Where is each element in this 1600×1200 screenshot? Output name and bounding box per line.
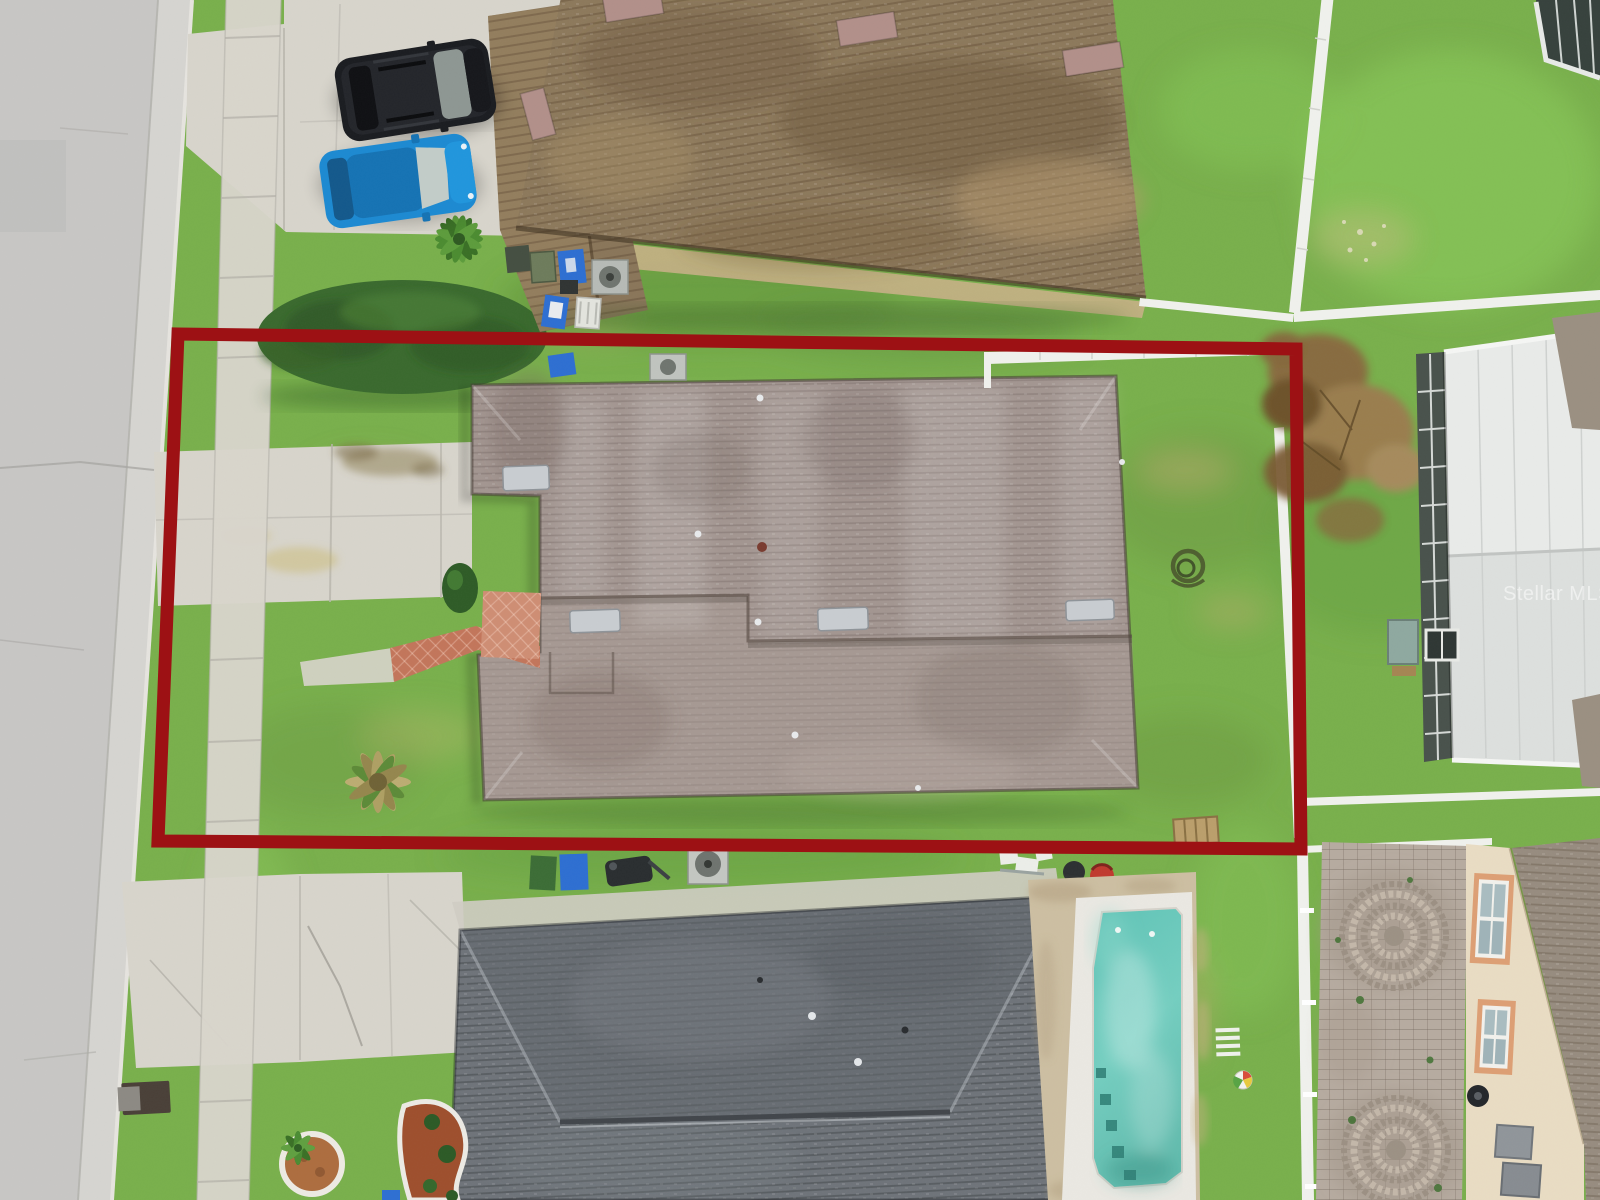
aerial-photo: Stellar MLS bbox=[0, 0, 1600, 1200]
photo-grain-overlay bbox=[0, 0, 1600, 1200]
aerial-scene bbox=[0, 0, 1600, 1200]
